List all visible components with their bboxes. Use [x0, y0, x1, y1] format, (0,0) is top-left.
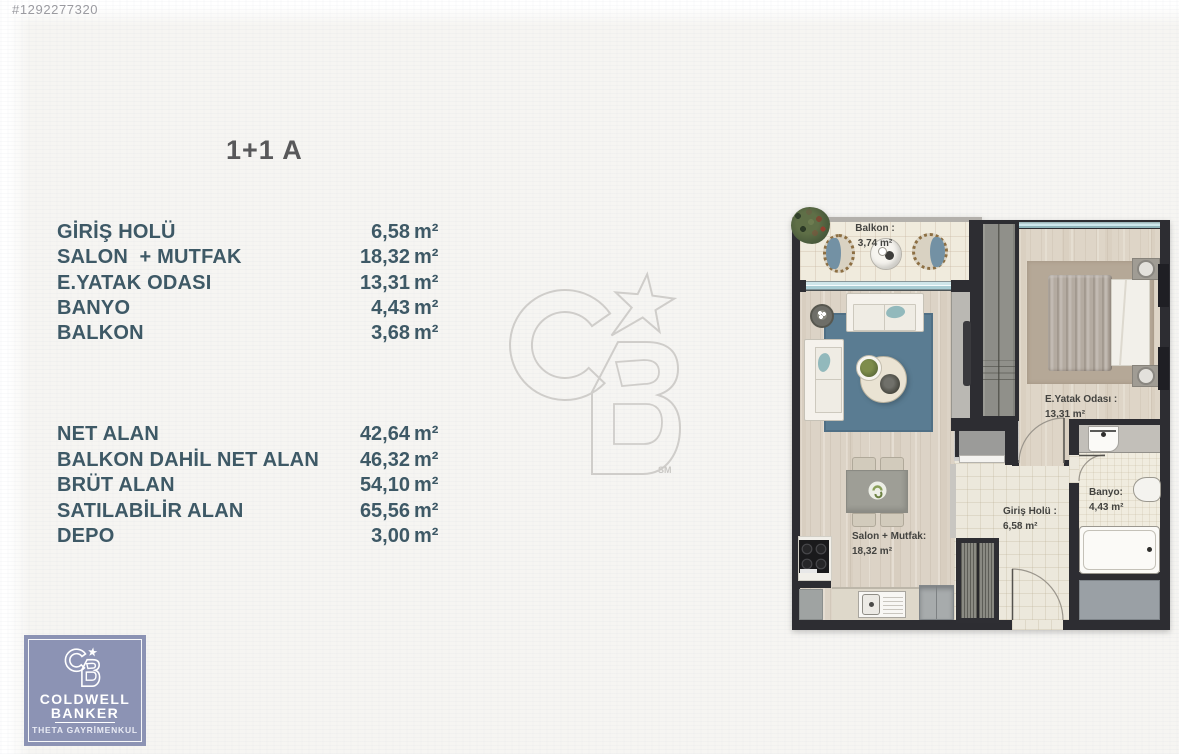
svg-text:SM: SM [658, 465, 672, 475]
